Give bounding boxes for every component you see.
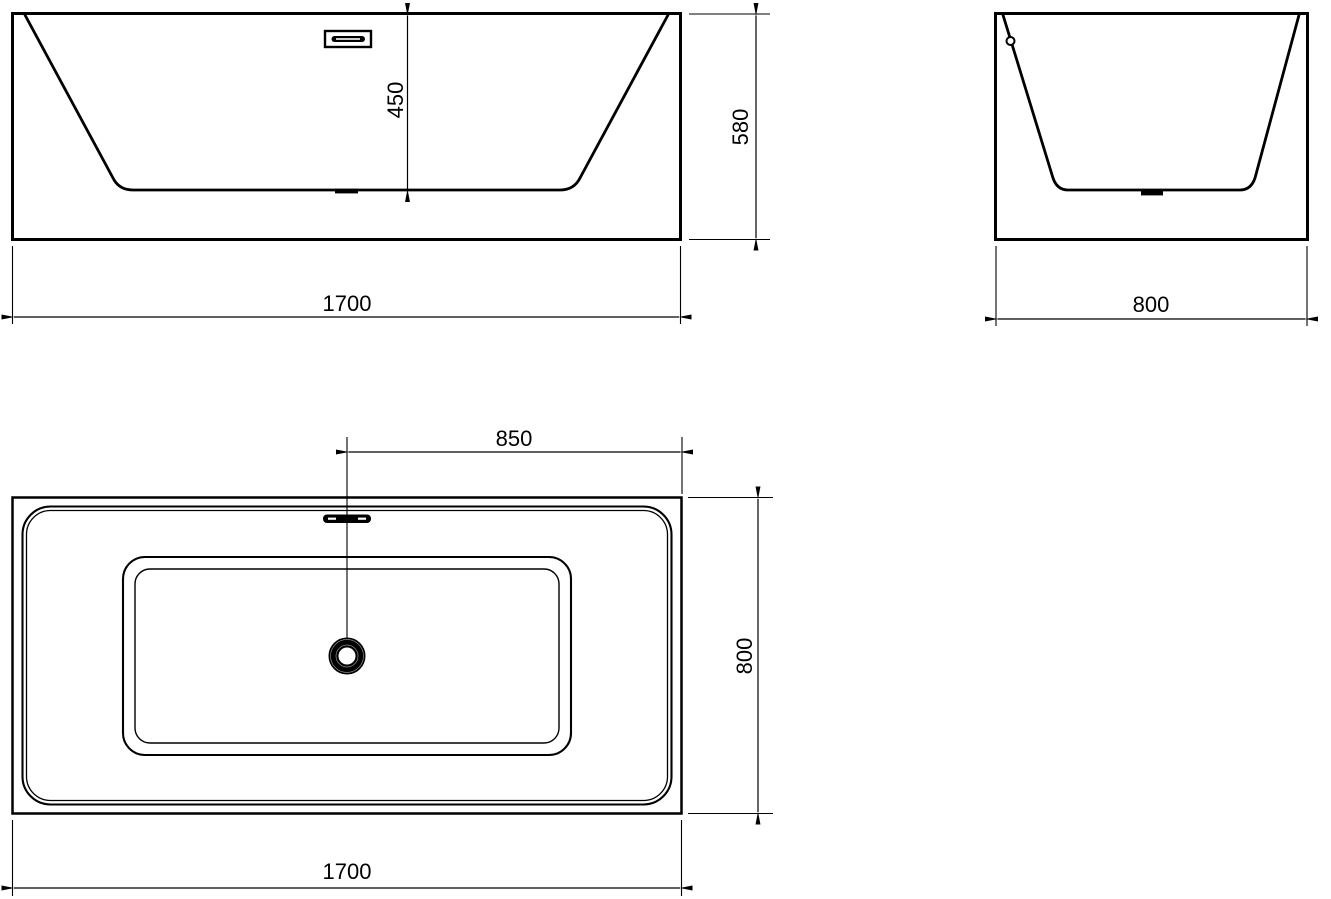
front-dim-label-height: 580 bbox=[728, 109, 753, 146]
front-view: 450 580 1700 bbox=[13, 14, 771, 325]
top-overflow-highlight-left bbox=[328, 518, 336, 520]
front-overflow-slot-highlight bbox=[336, 38, 360, 40]
top-drain-icon bbox=[334, 643, 361, 670]
side-outer-shell bbox=[996, 14, 1308, 240]
front-drain-mark bbox=[335, 189, 358, 194]
front-dim-label-depth: 450 bbox=[383, 82, 408, 119]
top-dim-label-offset: 850 bbox=[496, 426, 533, 451]
side-view: 800 bbox=[996, 14, 1308, 327]
side-drain-mark bbox=[1141, 191, 1163, 196]
top-overflow-highlight-right bbox=[358, 518, 366, 520]
side-dim-label-width: 800 bbox=[1133, 292, 1170, 317]
side-overflow-icon bbox=[1007, 37, 1015, 45]
top-dim-label-length: 1700 bbox=[323, 859, 372, 884]
top-dim-label-width: 800 bbox=[732, 638, 757, 675]
bathtub-technical-drawing: 450 580 1700 800 bbox=[0, 0, 1331, 899]
top-view: 850 800 1700 bbox=[13, 426, 774, 896]
front-dim-label-length: 1700 bbox=[323, 291, 372, 316]
drawing-svg: 450 580 1700 800 bbox=[0, 0, 1331, 899]
